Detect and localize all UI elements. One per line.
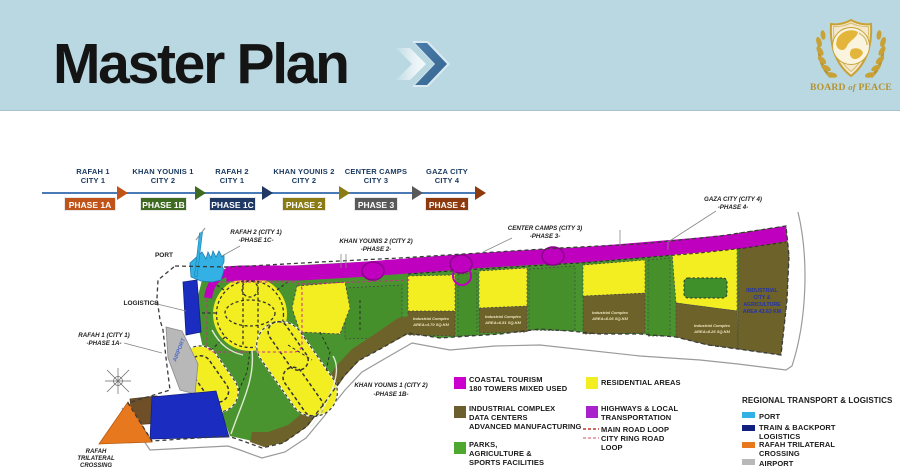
svg-text:RAFAH: RAFAH: [86, 449, 107, 455]
svg-text:AREA=8.26 SQ.KM: AREA=8.26 SQ.KM: [693, 329, 730, 334]
svg-text:AREA=4.70 SQ.KM: AREA=4.70 SQ.KM: [412, 322, 449, 327]
svg-text:Industrial Complex: Industrial Complex: [485, 314, 522, 319]
svg-text:AGRICULTURE: AGRICULTURE: [743, 302, 781, 308]
svg-text:RAFAH 1 (CITY 1): RAFAH 1 (CITY 1): [78, 332, 129, 339]
svg-text:CROSSING: CROSSING: [80, 463, 112, 469]
svg-text:PORT: PORT: [155, 252, 173, 259]
svg-text:-PHASE 3-: -PHASE 3-: [530, 233, 561, 240]
svg-text:-PHASE 1A-: -PHASE 1A-: [86, 340, 121, 347]
svg-text:Industrial Complex: Industrial Complex: [592, 310, 629, 315]
svg-text:AREA 43.63 KM: AREA 43.63 KM: [743, 309, 781, 315]
svg-text:Industrial Complex: Industrial Complex: [694, 323, 731, 328]
svg-text:INDUSTRIAL: INDUSTRIAL: [746, 288, 778, 294]
svg-text:KHAN YOUNIS 2 (CITY 2): KHAN YOUNIS 2 (CITY 2): [339, 238, 412, 245]
svg-text:-PHASE 1C-: -PHASE 1C-: [238, 237, 273, 244]
svg-text:CITY &: CITY &: [754, 295, 771, 301]
svg-text:KHAN YOUNIS 1 (CITY 2): KHAN YOUNIS 1 (CITY 2): [354, 382, 427, 389]
svg-text:GAZA CITY (CITY 4): GAZA CITY (CITY 4): [704, 196, 762, 203]
svg-text:Industrial Complex: Industrial Complex: [413, 316, 450, 321]
svg-text:AREA=8.06 SQ.KM: AREA=8.06 SQ.KM: [591, 316, 628, 321]
svg-text:-PHASE 4-: -PHASE 4-: [718, 204, 749, 211]
svg-text:TRILATERAL: TRILATERAL: [77, 456, 115, 462]
svg-text:-PHASE 2-: -PHASE 2-: [361, 246, 392, 253]
svg-text:RAFAH 2 (CITY 1): RAFAH 2 (CITY 1): [230, 229, 281, 236]
svg-text:-PHASE 1B-: -PHASE 1B-: [373, 391, 408, 398]
svg-text:LOGISTICS: LOGISTICS: [123, 300, 159, 307]
svg-text:AREA=6.51 SQ.KM: AREA=6.51 SQ.KM: [484, 320, 521, 325]
svg-text:CENTER CAMPS (CITY 3): CENTER CAMPS (CITY 3): [508, 225, 583, 232]
